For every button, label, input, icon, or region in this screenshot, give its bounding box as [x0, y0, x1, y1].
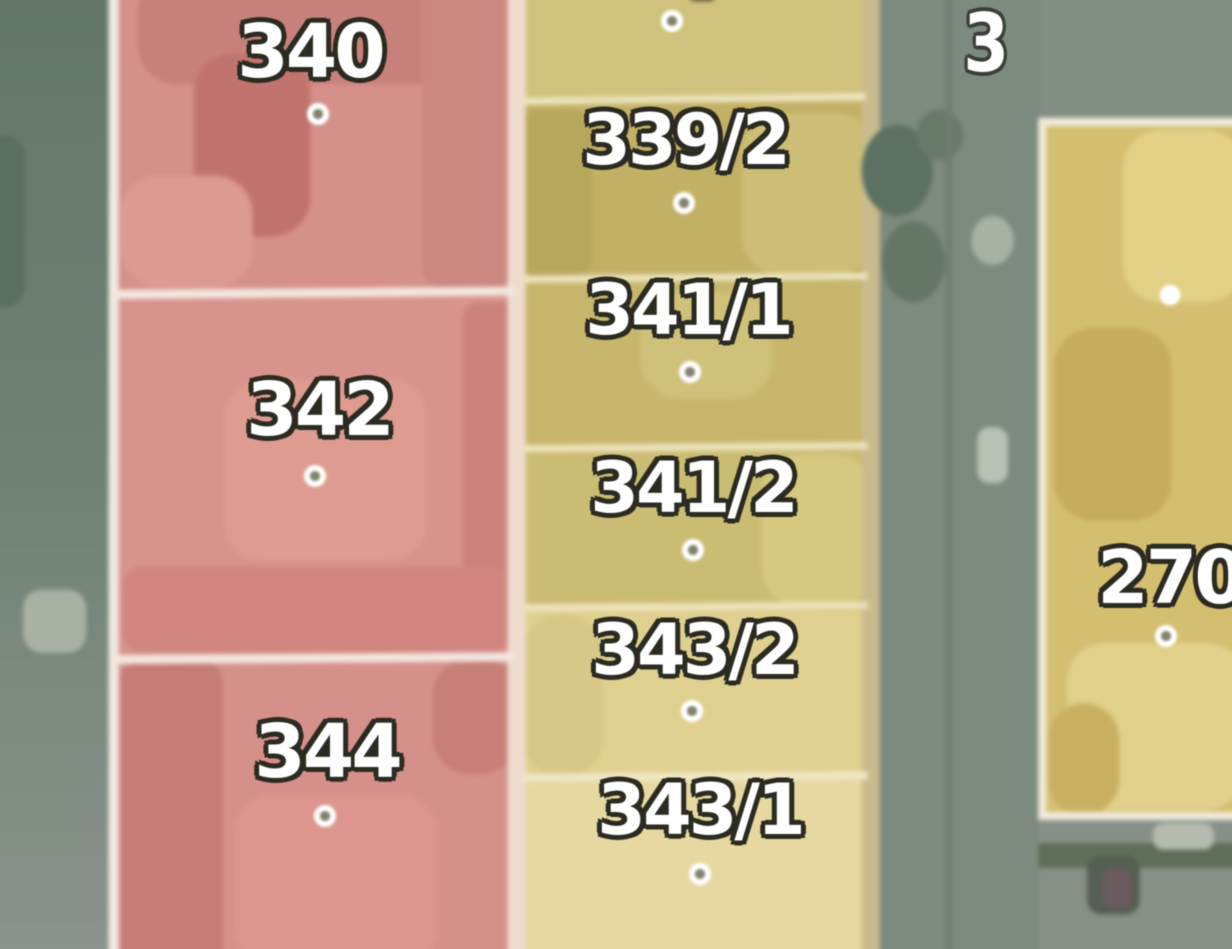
parcel-label-342: 342 [246, 373, 391, 447]
centroid-dot-270 [1153, 623, 1179, 649]
parcel-label-341-1: 341/1 [585, 275, 790, 345]
centroid-dot-340 [305, 101, 331, 127]
centroid-dot-341-1 [677, 359, 703, 385]
parcel-label-270: 270 [1097, 541, 1232, 615]
cadastral-map-view[interactable]: 340 342 344 339/2 341/1 341/2 343/2 343/… [0, 0, 1232, 949]
parcel-label-343-1: 343/1 [597, 775, 802, 845]
centroid-dot-343-2 [679, 698, 705, 724]
parcel-label-344: 344 [254, 715, 399, 789]
street-number-label: 3 [963, 4, 1006, 84]
parcel-label-343-2: 343/2 [591, 615, 796, 685]
map-label-layer: 340 342 344 339/2 341/1 341/2 343/2 343/… [0, 0, 1232, 949]
centroid-dot-339-2 [671, 190, 697, 216]
parcel-label-339-2: 339/2 [582, 105, 787, 175]
centroid-dot-343-1 [687, 861, 713, 887]
centroid-dot-270-parcel-point [1157, 282, 1183, 308]
parcel-label-341-2: 341/2 [590, 453, 795, 523]
centroid-dot-342 [302, 463, 328, 489]
centroid-dot-344 [312, 803, 338, 829]
parcel-label-340: 340 [237, 15, 382, 89]
centroid-dot-top-cut [659, 8, 685, 34]
centroid-dot-341-2 [680, 537, 706, 563]
